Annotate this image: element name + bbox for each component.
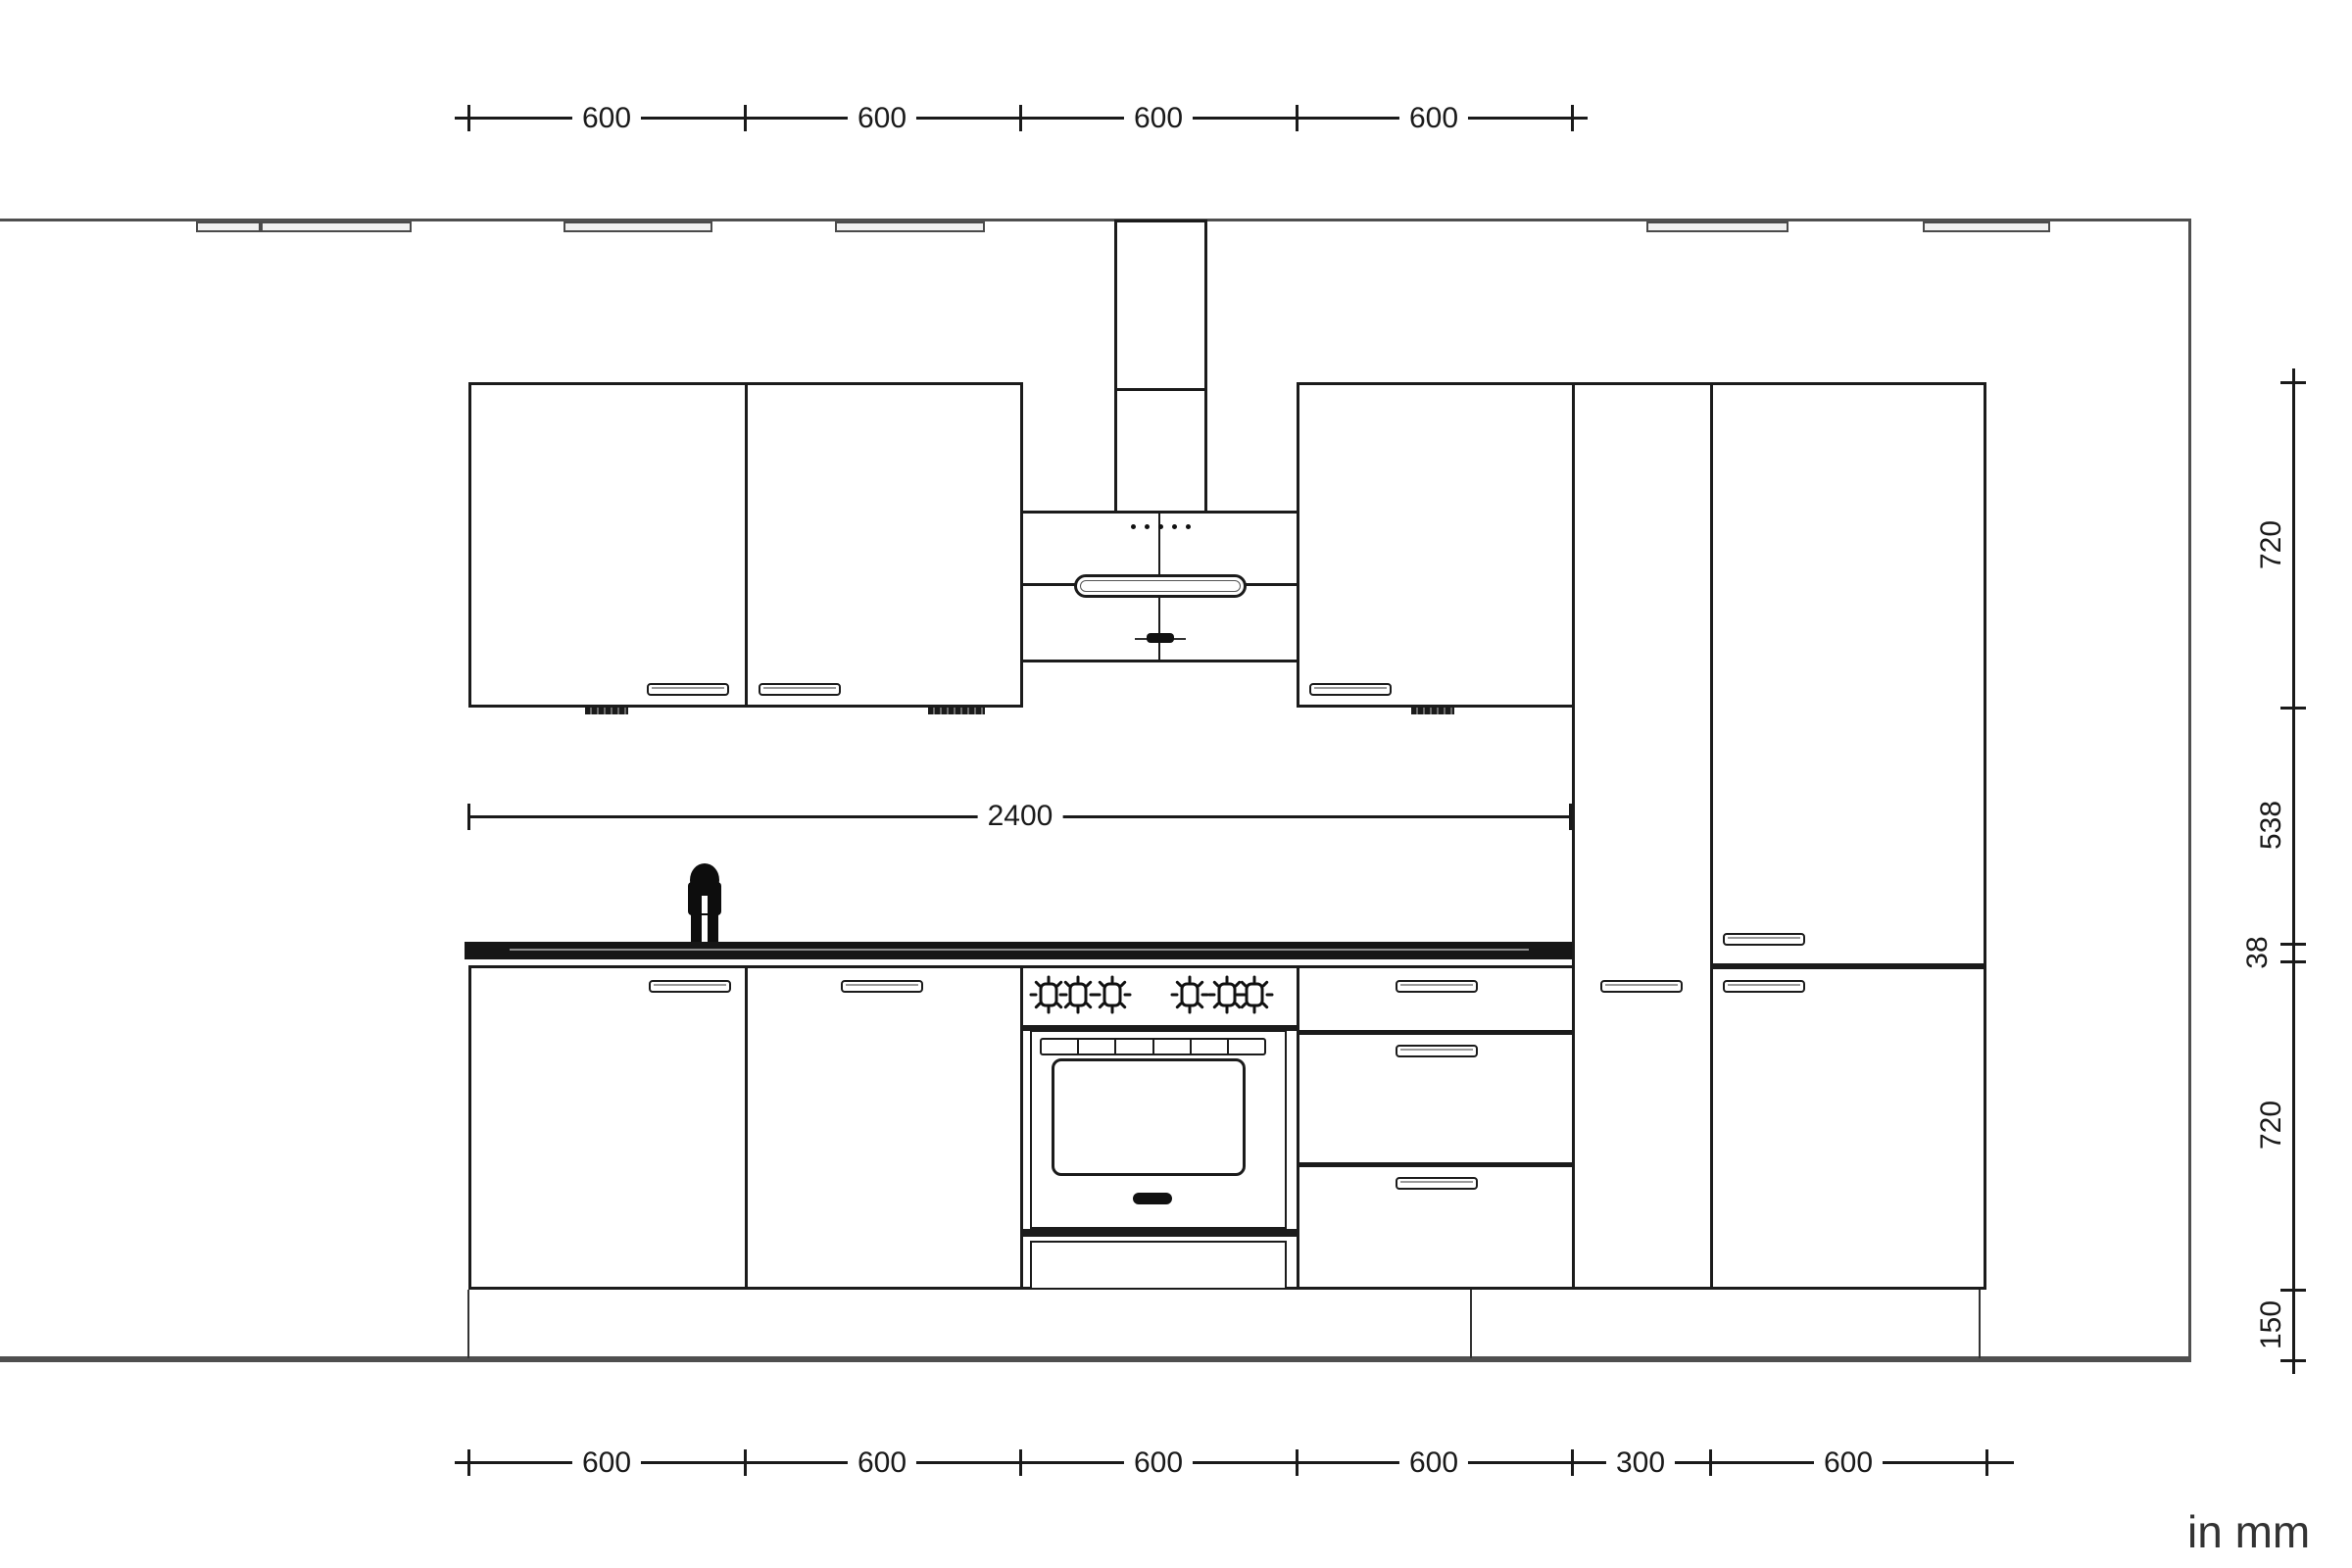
crown-trim bbox=[1646, 221, 1788, 232]
dim-tick bbox=[2280, 707, 2306, 710]
base-drawer-unit bbox=[1297, 965, 1575, 1290]
dim-tick bbox=[1985, 1449, 1988, 1476]
oven-button bbox=[1192, 1040, 1229, 1053]
wall-cabinet-door-2 bbox=[745, 382, 1023, 708]
base-cabinet-handle bbox=[841, 980, 923, 993]
wall-cabinet-door-3 bbox=[1297, 382, 1575, 708]
dim-tick bbox=[1709, 1449, 1712, 1476]
hood-chimney-duct bbox=[1114, 220, 1207, 514]
hood-vent-bar-inner bbox=[1080, 580, 1241, 592]
cooktop-knob-icon bbox=[1235, 975, 1274, 1014]
hood-vent-bar bbox=[1074, 574, 1247, 598]
dim-label: 600 bbox=[1399, 102, 1468, 135]
right-dimension-line bbox=[2292, 368, 2295, 1374]
dim-label: 720 bbox=[2256, 1093, 2287, 1157]
drawer-handle bbox=[1396, 1177, 1478, 1190]
dim-label: 300 bbox=[1606, 1446, 1675, 1480]
dim-tick bbox=[1296, 105, 1298, 131]
dim-tick bbox=[2280, 1359, 2306, 1362]
base-cabinet-handle bbox=[649, 980, 731, 993]
oven-button bbox=[1079, 1040, 1116, 1053]
dim-label: 600 bbox=[572, 102, 641, 135]
dim-label: 600 bbox=[1124, 102, 1193, 135]
hood-vent-dot bbox=[1186, 524, 1191, 529]
tall-cabinet-300 bbox=[1572, 382, 1713, 1290]
dim-tick bbox=[1571, 1449, 1574, 1476]
oven-storage-drawer bbox=[1030, 1241, 1287, 1290]
dim-tick bbox=[467, 804, 470, 830]
dim-label: 600 bbox=[572, 1446, 641, 1480]
wall-corner-line bbox=[2188, 219, 2191, 1361]
dim-label: 600 bbox=[1814, 1446, 1883, 1480]
oven-button bbox=[1116, 1040, 1153, 1053]
overall-width-label: 2400 bbox=[978, 800, 1063, 833]
wall-cabinet-door-1 bbox=[468, 382, 748, 708]
dim-tick bbox=[1296, 1449, 1298, 1476]
tall-cabinet-600 bbox=[1710, 382, 1986, 1290]
dim-label: 150 bbox=[2256, 1293, 2287, 1357]
dim-tick bbox=[2280, 381, 2306, 384]
hood-vent-dot bbox=[1145, 524, 1150, 529]
dim-label: 600 bbox=[1399, 1446, 1468, 1480]
cabinet-bottom-hinge-mark bbox=[1411, 708, 1454, 714]
plinth-edge-line bbox=[467, 1290, 469, 1358]
countertop-inner-line bbox=[510, 949, 1529, 951]
tall-cabinet-handle bbox=[1600, 980, 1683, 993]
wall-cabinet-handle bbox=[759, 683, 841, 696]
crown-trim bbox=[261, 221, 412, 232]
crown-trim bbox=[196, 221, 261, 232]
dim-tick bbox=[1571, 105, 1574, 131]
base-cabinet-door-2 bbox=[745, 965, 1023, 1290]
oven-window bbox=[1052, 1058, 1246, 1176]
crown-trim bbox=[835, 221, 985, 232]
drawer-divider-line bbox=[1297, 1162, 1575, 1167]
dim-tick bbox=[1019, 1449, 1022, 1476]
wall-cabinet-handle bbox=[1309, 683, 1392, 696]
dim-tick bbox=[1019, 105, 1022, 131]
dim-label: 600 bbox=[848, 102, 916, 135]
dim-label: 538 bbox=[2256, 793, 2287, 857]
oven-button bbox=[1229, 1040, 1264, 1053]
dim-tick bbox=[2280, 960, 2306, 963]
oven-drawer-gap-line bbox=[1020, 1229, 1299, 1237]
wall-cabinet-handle bbox=[647, 683, 729, 696]
dim-tick bbox=[467, 105, 470, 131]
oven-button bbox=[1154, 1040, 1192, 1053]
crown-trim bbox=[563, 221, 712, 232]
dim-label: 600 bbox=[848, 1446, 916, 1480]
cooktop-knob-icon bbox=[1170, 975, 1209, 1014]
cooktop-knob-icon bbox=[1093, 975, 1132, 1014]
tall-cabinet-division-line bbox=[1710, 963, 1986, 969]
units-note: in mm bbox=[2187, 1505, 2310, 1558]
dim-label: 38 bbox=[2242, 928, 2274, 976]
drawer-divider-line bbox=[1297, 1030, 1575, 1035]
dim-tick bbox=[2280, 1289, 2306, 1292]
oven-badge bbox=[1133, 1193, 1172, 1204]
cabinet-bottom-hinge-mark bbox=[928, 708, 985, 714]
tall-cabinet-lower-handle bbox=[1723, 980, 1805, 993]
hood-vent-dot bbox=[1172, 524, 1177, 529]
hood-duct-joint-line bbox=[1114, 388, 1207, 391]
dim-tick bbox=[744, 105, 747, 131]
plinth-joint-line bbox=[1470, 1290, 1472, 1358]
drawer-handle bbox=[1396, 1045, 1478, 1057]
plinth-edge-line bbox=[1979, 1290, 1981, 1358]
dim-label: 600 bbox=[1124, 1446, 1193, 1480]
base-cabinet-door-1 bbox=[468, 965, 748, 1290]
hood-vent-dot bbox=[1131, 524, 1136, 529]
floor-line bbox=[0, 1356, 2191, 1362]
oven-control-button-row bbox=[1040, 1038, 1266, 1055]
oven-button bbox=[1042, 1040, 1079, 1053]
drawer-handle bbox=[1396, 980, 1478, 993]
tall-cabinet-upper-handle bbox=[1723, 933, 1805, 946]
hood-lamp-icon bbox=[1147, 633, 1174, 643]
countertop bbox=[465, 942, 1572, 959]
faucet-icon bbox=[674, 860, 735, 951]
crown-trim bbox=[1923, 221, 2050, 232]
dim-label: 720 bbox=[2256, 513, 2287, 577]
dim-tick bbox=[744, 1449, 747, 1476]
dim-tick bbox=[467, 1449, 470, 1476]
kitchen-elevation-drawing: 600 600 600 600 2400 bbox=[0, 0, 2352, 1568]
cooktop-knob-icon bbox=[1058, 975, 1098, 1014]
bottom-dimension-line bbox=[455, 1461, 2014, 1464]
dim-tick bbox=[2280, 943, 2306, 946]
cabinet-bottom-hinge-mark bbox=[585, 708, 628, 714]
hood-vent-dot bbox=[1158, 524, 1163, 529]
